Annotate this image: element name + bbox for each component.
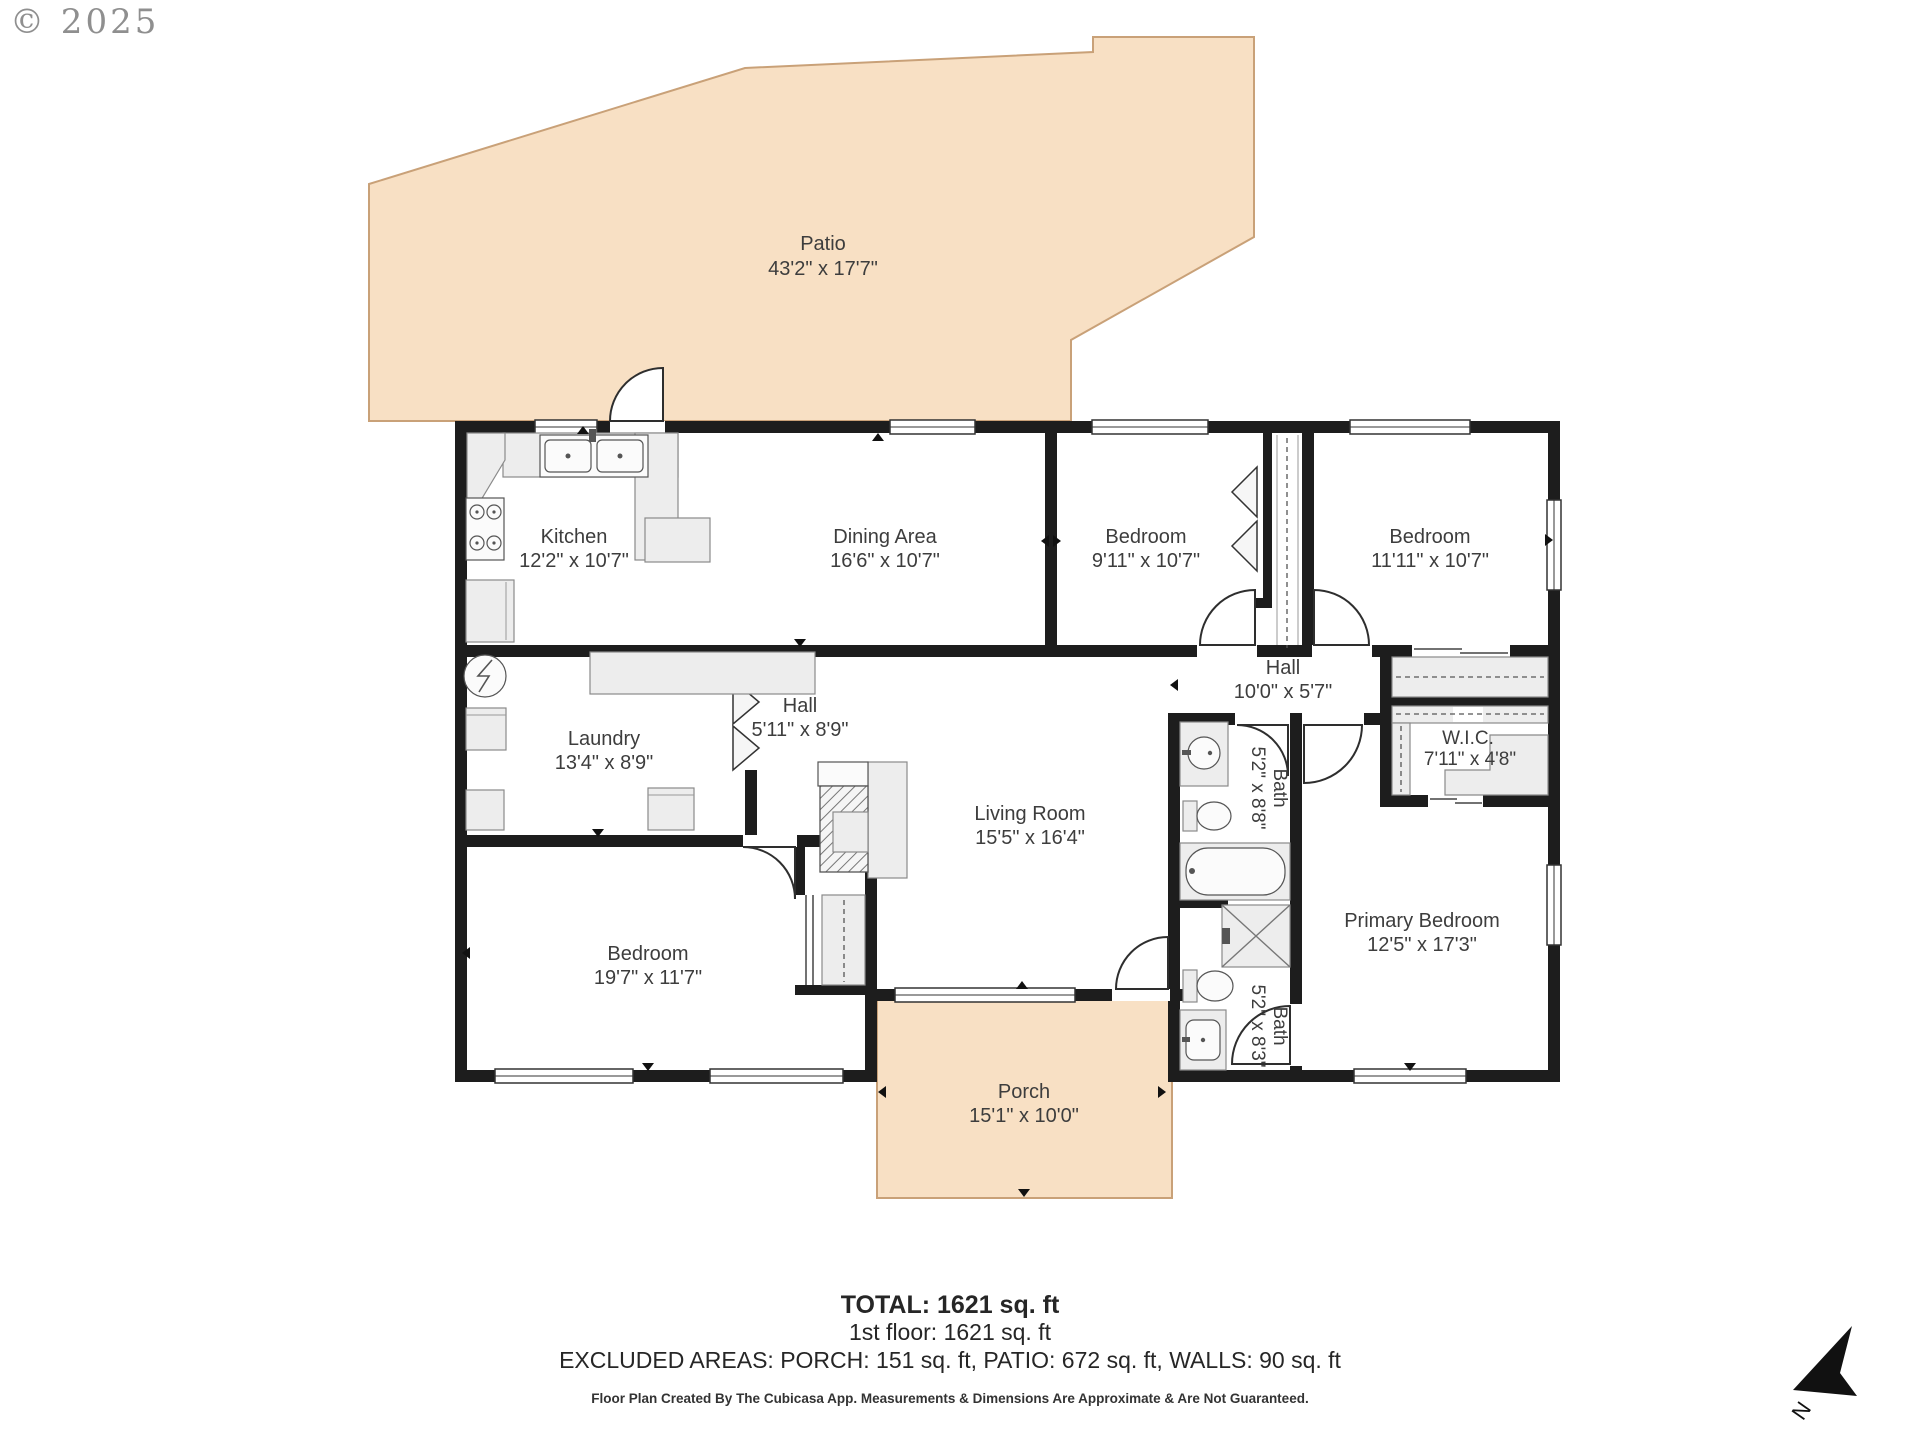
bedroom1-label: Bedroom <box>1105 526 1186 548</box>
total-area: TOTAL: 1621 sq. ft <box>0 1291 1900 1319</box>
laundry-dims: 13'4" x 8'9" <box>555 752 654 774</box>
laundry-counter <box>590 652 815 694</box>
hall-upper-dims: 5'11" x 8'9" <box>751 719 848 741</box>
summary-block: TOTAL: 1621 sq. ft 1st floor: 1621 sq. f… <box>0 1291 1900 1406</box>
copyright-watermark: © 2025 <box>10 2 159 42</box>
bath-hall-dims: 5'2" x 8'8" <box>1247 746 1268 829</box>
bedroom3-dims: 19'7" x 11'7" <box>594 967 702 989</box>
kitchen-faucet <box>589 429 596 442</box>
bedroom2-dims: 11'11" x 10'7" <box>1371 550 1489 572</box>
patio-area <box>369 37 1254 421</box>
bath-primary-label: Bath <box>1269 1006 1290 1045</box>
first-floor-area: 1st floor: 1621 sq. ft <box>0 1319 1900 1346</box>
bath-sink <box>1188 737 1220 769</box>
kitchen-dims: 12'2" x 10'7" <box>519 550 629 572</box>
hall-upper-label: Hall <box>783 695 817 717</box>
hall-lower-label: Hall <box>1266 657 1300 679</box>
toilet-bowl-2 <box>1197 971 1233 1001</box>
dining-label: Dining Area <box>833 526 937 548</box>
floorplan-page: © 2025 <box>0 0 1920 1440</box>
dining-dims: 16'6" x 10'7" <box>830 550 940 572</box>
primary-dims: 12'5" x 17'3" <box>1367 934 1477 956</box>
wic-dims: 7'11" x 4'8" <box>1424 749 1516 770</box>
excluded-areas: EXCLUDED AREAS: PORCH: 151 sq. ft, PATIO… <box>0 1346 1900 1374</box>
fireplace <box>818 762 907 878</box>
washer <box>466 708 506 750</box>
kitchen-label: Kitchen <box>541 526 608 548</box>
toilet-tank-2 <box>1183 970 1197 1002</box>
wic-label: W.I.C. <box>1442 728 1494 749</box>
patio-shape <box>369 37 1254 421</box>
laundry-cabinet <box>466 790 504 830</box>
primary-bath-fixtures <box>1180 970 1233 1070</box>
living-label: Living Room <box>974 803 1085 825</box>
patio-label: Patio <box>800 233 846 255</box>
porch-dims: 15'1" x 10'0" <box>969 1105 1079 1127</box>
disclaimer: Floor Plan Created By The Cubicasa App. … <box>0 1391 1900 1406</box>
bath-primary-dims: 5'2" x 8'3" <box>1247 984 1268 1067</box>
living-dims: 15'5" x 16'4" <box>975 827 1085 849</box>
bath-hall-label: Bath <box>1269 768 1290 807</box>
bedroom2-label: Bedroom <box>1389 526 1470 548</box>
primary-label: Primary Bedroom <box>1344 910 1500 932</box>
laundry-label: Laundry <box>568 728 640 750</box>
hall-lower-dims: 10'0" x 5'7" <box>1234 681 1333 703</box>
refrigerator <box>466 580 514 642</box>
floorplan-svg: Patio 43'2" x 17'7" Kitchen 12'2" x 10'7… <box>0 0 1920 1440</box>
patio-dims: 43'2" x 17'7" <box>768 258 878 280</box>
toilet-bowl <box>1197 802 1231 830</box>
toilet-tank <box>1183 801 1197 831</box>
porch-label: Porch <box>998 1081 1050 1103</box>
bedroom1-dims: 9'11" x 10'7" <box>1092 550 1200 572</box>
bedroom3-label: Bedroom <box>607 943 688 965</box>
dryer <box>648 788 694 830</box>
